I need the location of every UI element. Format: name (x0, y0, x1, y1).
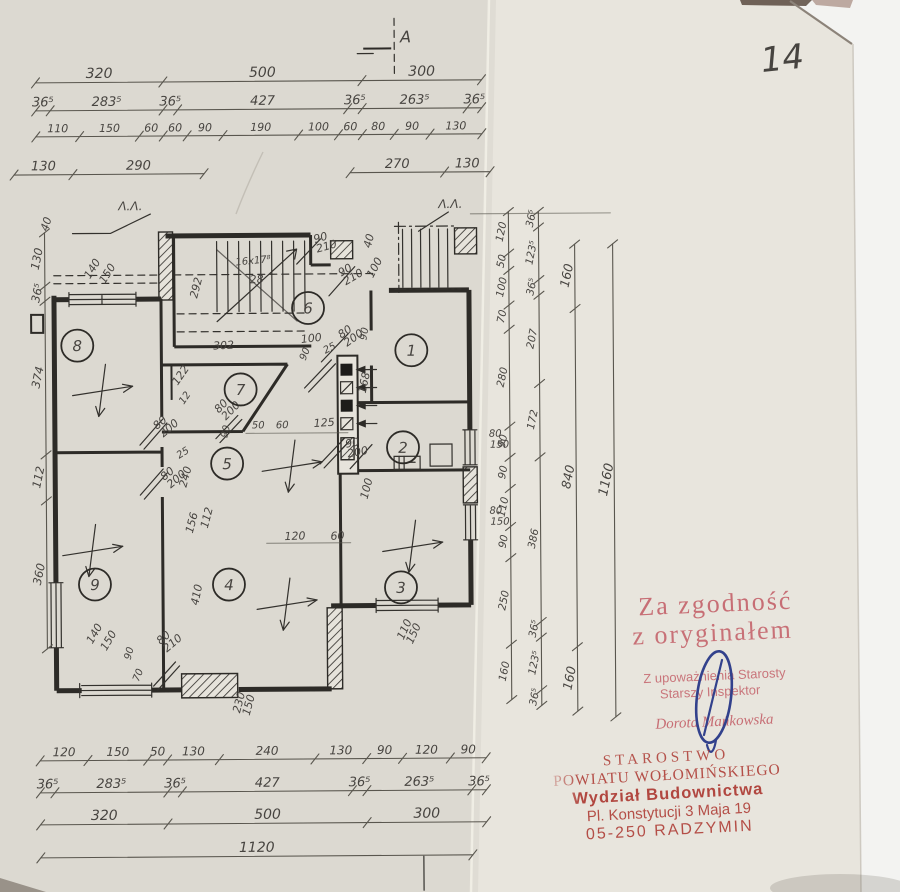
dimension-label: 263⁵ (404, 775, 434, 790)
room-number: 9 (90, 576, 100, 594)
dimension-label: 120 (53, 745, 76, 759)
dimension-label: 150 (106, 745, 129, 759)
dimension-label: 270 (385, 157, 410, 172)
page-corner-shadow (740, 0, 812, 6)
plan-annotation: 50 (252, 420, 265, 431)
dimension-label: 60 (144, 122, 158, 135)
plan-annotation: 150 (490, 440, 509, 451)
dimension-label: 90 (198, 121, 212, 134)
dimension-label: 300 (413, 806, 440, 822)
room-number: 1 (406, 342, 416, 360)
dimension-label: 500 (249, 65, 276, 81)
floor-plan-scan: A Λ.Λ. Λ.Λ. (0, 0, 900, 892)
dimension-label: 320 (91, 808, 118, 824)
scanned-floorplan-page: A Λ.Λ. Λ.Λ. (0, 0, 900, 892)
room-number: 8 (72, 337, 82, 355)
handwritten-sheet-number: 14 (759, 37, 806, 81)
room-number: 4 (224, 576, 234, 594)
svg-text:Λ.Λ.: Λ.Λ. (437, 197, 462, 211)
svg-text:Λ.Λ.: Λ.Λ. (117, 199, 142, 213)
plan-annotation: 60 (330, 529, 345, 543)
plan-annotation: 100 (300, 331, 322, 346)
plan-annotation: 125 (313, 416, 335, 430)
dimension-label: 263⁵ (400, 93, 430, 108)
room-number: 5 (222, 455, 232, 473)
dimension-label: 36⁵ (344, 93, 366, 108)
plan-annotation: 60 (276, 420, 289, 431)
dimension-label: 60 (168, 121, 182, 134)
dimension-label: 130 (445, 119, 466, 132)
dimension-label: 36⁵ (37, 777, 59, 792)
dimension-label: 130 (455, 156, 480, 171)
dimension-label: 60 (343, 120, 357, 133)
dimension-label: 283⁵ (96, 777, 126, 792)
dimension-label: 240 (256, 744, 279, 758)
dimension-label: 90 (461, 742, 477, 756)
dimension-label: 50 (150, 744, 166, 758)
section-letter: A (399, 27, 411, 46)
plan-annotation: 90 (358, 327, 371, 341)
room-number: 2 (398, 439, 408, 457)
room-number: 3 (396, 579, 406, 597)
dimension-label: 427 (255, 776, 281, 791)
dimension-label: 36⁵ (349, 775, 371, 790)
plan-annotation: 150 (490, 517, 509, 528)
plan-annotation: 28 (249, 273, 264, 287)
plan-annotation: 80 (489, 506, 502, 517)
dimension-label: 36⁵ (463, 92, 485, 107)
dimension-label: 36⁵ (159, 94, 181, 109)
dimension-label: 120 (415, 743, 438, 757)
dimension-label: 427 (250, 94, 276, 109)
room-number: 7 (236, 381, 246, 399)
dimension-label: 36⁵ (164, 776, 186, 791)
plan-annotation: 302 (213, 338, 235, 352)
dimension-label: 130 (31, 159, 56, 174)
dimension-label: 283⁵ (92, 95, 122, 110)
dimension-label: 320 (86, 66, 113, 82)
dimension-label: 130 (329, 743, 352, 757)
dimension-label: 300 (408, 64, 435, 80)
plan-annotation: 120 (284, 529, 306, 543)
dimension-label: 1120 (239, 840, 275, 856)
room-number: 6 (303, 299, 313, 317)
dimension-label: 290 (126, 159, 151, 174)
dimension-label: 90 (377, 743, 393, 757)
dimension-label: 110 (47, 122, 68, 135)
dimension-label: 36⁵ (32, 95, 54, 110)
dimension-label: 36⁵ (468, 774, 490, 789)
dimension-label: 190 (250, 121, 271, 134)
plan-annotation: 80 (489, 429, 502, 440)
dimension-label: 500 (254, 807, 281, 823)
dimension-label: 150 (99, 122, 120, 135)
dimension-label: 100 (308, 120, 329, 133)
dimension-label: 90 (405, 120, 419, 133)
dimension-label: 130 (182, 744, 205, 758)
stamp-edge-fade (537, 747, 582, 851)
dimension-label: 80 (371, 120, 385, 133)
